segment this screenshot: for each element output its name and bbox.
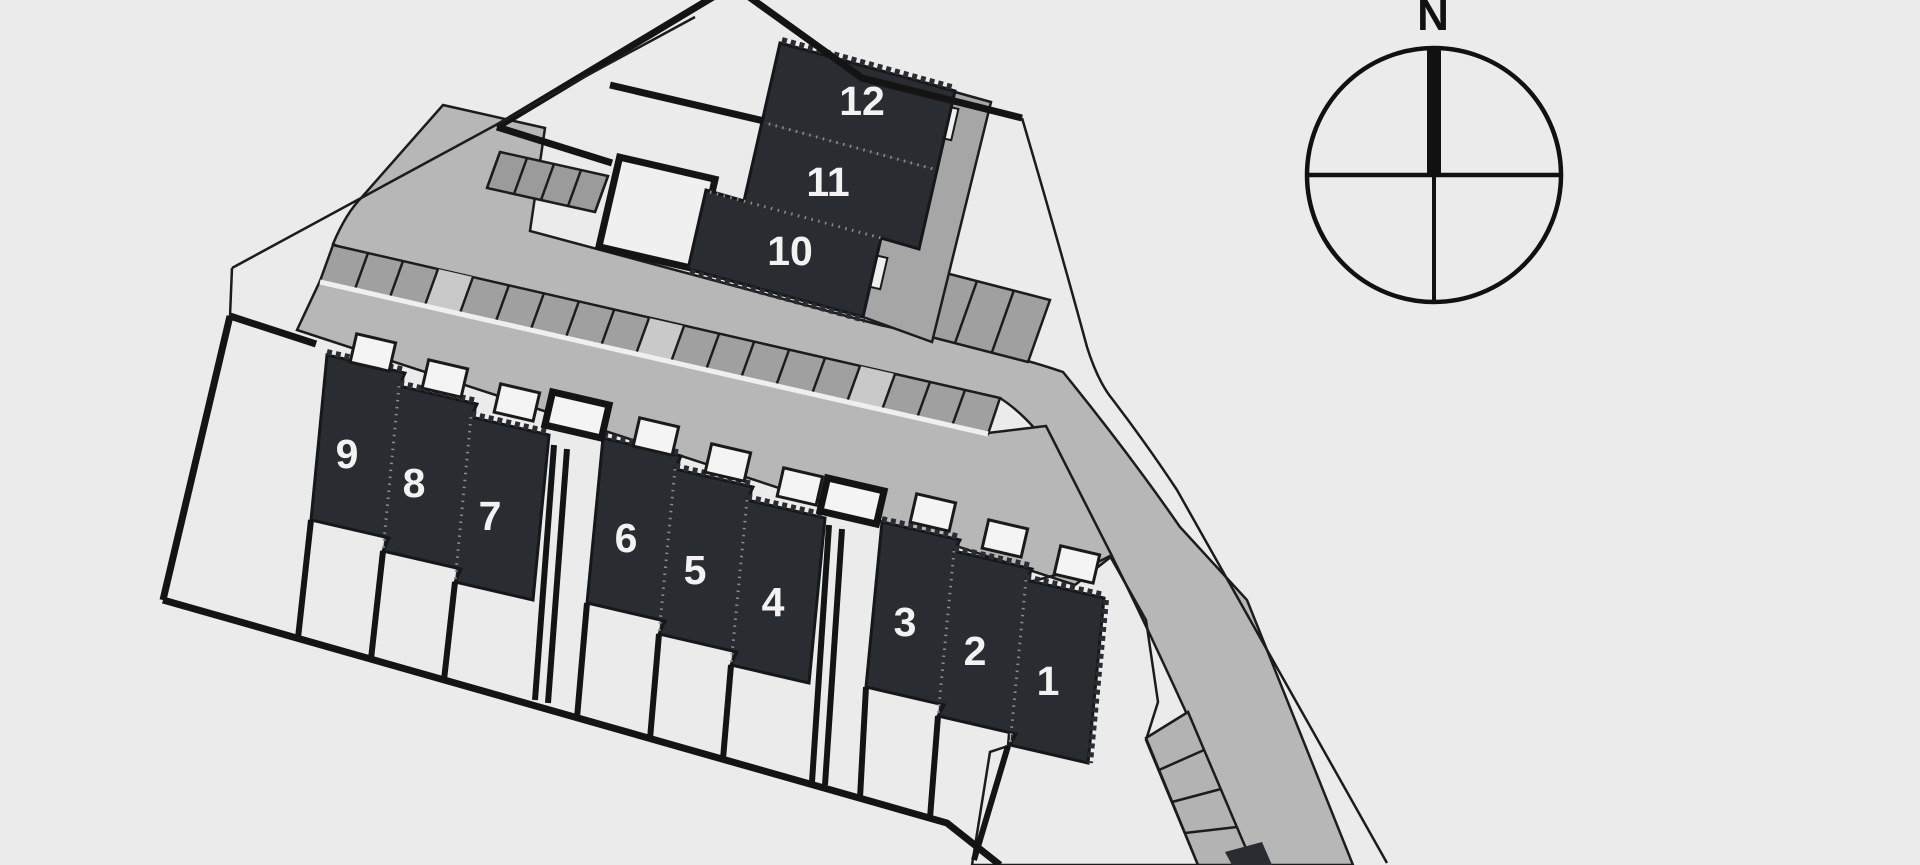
site-plan-svg: 1 2 3 4 5 6 7 8 9 10 11 12 N xyxy=(0,0,1920,865)
unit-label-7: 7 xyxy=(479,493,502,539)
unit-label-11: 11 xyxy=(806,159,849,205)
compass-north-needle xyxy=(1427,48,1441,175)
unit-label-8: 8 xyxy=(403,460,426,506)
unit-label-12: 12 xyxy=(839,78,885,124)
unit-label-1: 1 xyxy=(1037,658,1060,704)
compass-north-label: N xyxy=(1417,0,1449,40)
unit-label-10: 10 xyxy=(767,228,813,274)
unit-label-9: 9 xyxy=(336,431,359,477)
unit-label-4: 4 xyxy=(762,579,785,625)
unit-label-3: 3 xyxy=(894,599,917,645)
unit-label-5: 5 xyxy=(684,547,707,593)
unit-label-6: 6 xyxy=(615,515,638,561)
unit-label-2: 2 xyxy=(964,628,987,674)
